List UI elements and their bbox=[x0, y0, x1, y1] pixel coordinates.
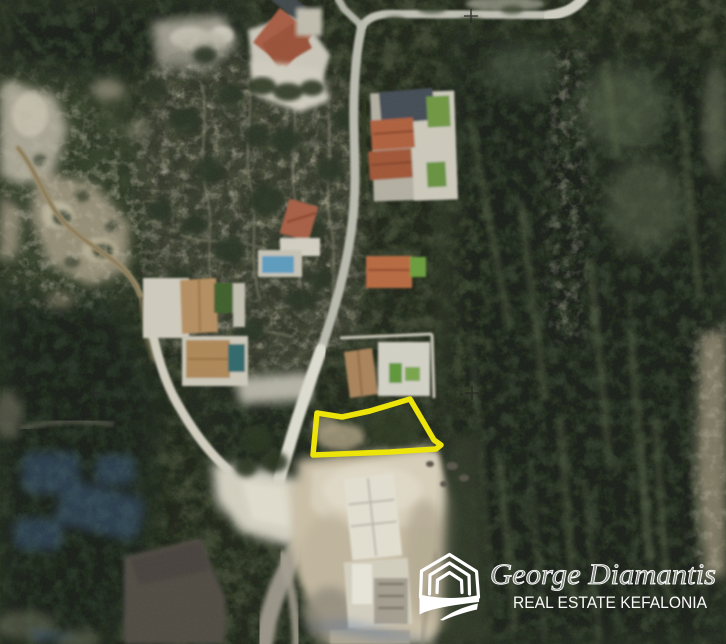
svg-text:George Diamantis: George Diamantis bbox=[490, 558, 716, 591]
svg-text:REAL ESTATE KEFALONIA: REAL ESTATE KEFALONIA bbox=[513, 594, 707, 612]
